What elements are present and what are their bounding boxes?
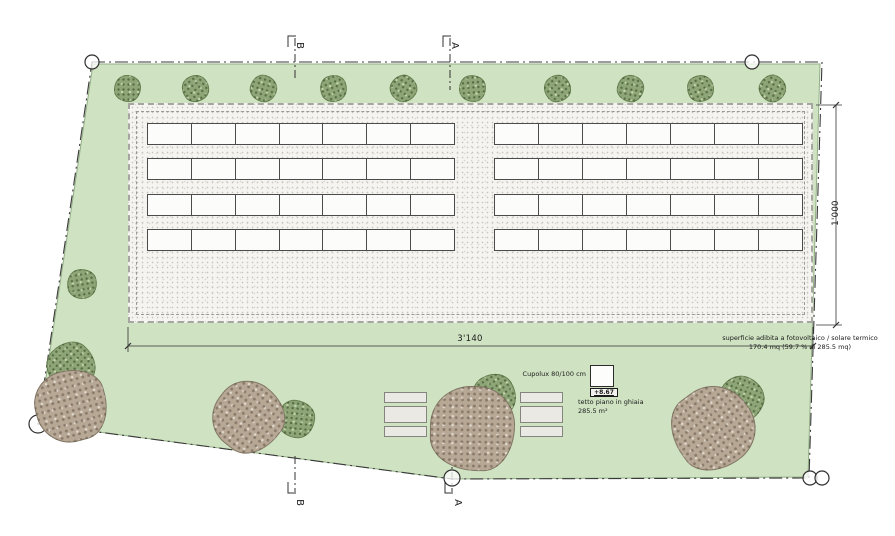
- solar-panel-cell: [279, 159, 323, 179]
- solar-panel-cell: [626, 230, 670, 250]
- solar-panel-cell: [322, 195, 366, 215]
- solar-panel-row: [147, 229, 455, 251]
- solar-panel-row: [147, 123, 455, 145]
- solar-panel-cell: [235, 195, 279, 215]
- solar-panel-cell: [758, 195, 802, 215]
- solar-panel-cell: [191, 124, 235, 144]
- bench: [384, 392, 427, 403]
- solar-panel-cell: [758, 230, 802, 250]
- solar-panel-row: [494, 229, 803, 251]
- survey-point: [745, 55, 759, 69]
- solar-panel-cell: [279, 195, 323, 215]
- solar-panel-cell: [148, 159, 191, 179]
- solar-panel-cell: [538, 195, 582, 215]
- pv-surface-line1: superficie adibita a fotovoltaico / sola…: [695, 334, 895, 343]
- pv-surface-line2: 170.4 mq (59.7 % di 285.5 mq): [695, 343, 895, 352]
- solar-panel-cell: [366, 159, 410, 179]
- section-label-b-bottom: B: [294, 499, 305, 506]
- site-plan-canvas: superficie adibita a fotovoltaico / sola…: [0, 0, 895, 536]
- solar-panel-cell: [670, 195, 714, 215]
- survey-point: [85, 55, 99, 69]
- solar-panel-cell: [626, 159, 670, 179]
- bench: [520, 426, 563, 437]
- solar-panel-cell: [191, 195, 235, 215]
- solar-panel-cell: [410, 124, 454, 144]
- solar-panel-cell: [714, 195, 758, 215]
- solar-panel-cell: [495, 195, 538, 215]
- bench: [520, 406, 563, 423]
- roof-surface-line2: 285.5 m²: [578, 407, 644, 416]
- solar-panel-cell: [758, 159, 802, 179]
- solar-panel-cell: [495, 159, 538, 179]
- solar-panel-cell: [279, 230, 323, 250]
- solar-panel-cell: [538, 124, 582, 144]
- solar-panel-cell: [148, 124, 191, 144]
- solar-panel-cell: [148, 195, 191, 215]
- solar-panel-cell: [279, 124, 323, 144]
- building-roof: superficie adibita a fotovoltaico / sola…: [128, 103, 813, 323]
- solar-panel-row: [494, 123, 803, 145]
- solar-panel-cell: [410, 159, 454, 179]
- solar-panel-cell: [626, 124, 670, 144]
- solar-panel-cell: [582, 195, 626, 215]
- solar-panel-cell: [495, 230, 538, 250]
- solar-panel-cell: [366, 195, 410, 215]
- solar-panel-row: [494, 158, 803, 180]
- solar-panel-cell: [714, 124, 758, 144]
- solar-panel-row: [494, 194, 803, 216]
- solar-panel-cell: [191, 230, 235, 250]
- solar-panel-cell: [410, 230, 454, 250]
- solar-panel-cell: [148, 230, 191, 250]
- solar-panel-cell: [410, 195, 454, 215]
- solar-panel-cell: [235, 230, 279, 250]
- solar-panel-cell: [582, 159, 626, 179]
- solar-panel-cell: [322, 124, 366, 144]
- solar-panel-cell: [366, 230, 410, 250]
- solar-panel-cell: [538, 159, 582, 179]
- section-label-a-top: A: [449, 42, 460, 49]
- solar-panel-cell: [366, 124, 410, 144]
- section-label-a-bottom: A: [452, 499, 463, 506]
- bench: [384, 406, 427, 423]
- solar-panel-cell: [670, 230, 714, 250]
- bench: [520, 392, 563, 403]
- tree-icon: [114, 75, 141, 102]
- roof-surface-label: tetto piano in ghiaia 285.5 m²: [578, 398, 644, 416]
- solar-panel-cell: [582, 230, 626, 250]
- solar-panel-cell: [714, 230, 758, 250]
- survey-point: [815, 471, 829, 485]
- solar-panel-row: [147, 158, 455, 180]
- solar-panel-cell: [191, 159, 235, 179]
- pv-surface-label: superficie adibita a fotovoltaico / sola…: [695, 334, 895, 352]
- solar-panel-cell: [714, 159, 758, 179]
- elevation-marker: +8.67: [590, 388, 618, 397]
- solar-panel-row: [147, 194, 455, 216]
- survey-point: [444, 470, 460, 486]
- dim-height-label: 1'000: [831, 195, 841, 231]
- skylight-square: [590, 365, 614, 387]
- section-label-b-top: B: [294, 42, 305, 49]
- solar-panel-cell: [626, 195, 670, 215]
- solar-panel-cell: [235, 159, 279, 179]
- tree-large-icon: [429, 385, 515, 471]
- solar-panel-cell: [235, 124, 279, 144]
- solar-panel-cell: [670, 124, 714, 144]
- bench: [384, 426, 427, 437]
- solar-panel-cell: [670, 159, 714, 179]
- solar-panel-cell: [538, 230, 582, 250]
- dim-width-label: 3'140: [430, 334, 510, 344]
- roof-surface-line1: tetto piano in ghiaia: [578, 398, 644, 407]
- solar-panel-cell: [322, 230, 366, 250]
- solar-panel-cell: [322, 159, 366, 179]
- solar-panel-cell: [758, 124, 802, 144]
- solar-panel-cell: [582, 124, 626, 144]
- solar-panel-cell: [495, 124, 538, 144]
